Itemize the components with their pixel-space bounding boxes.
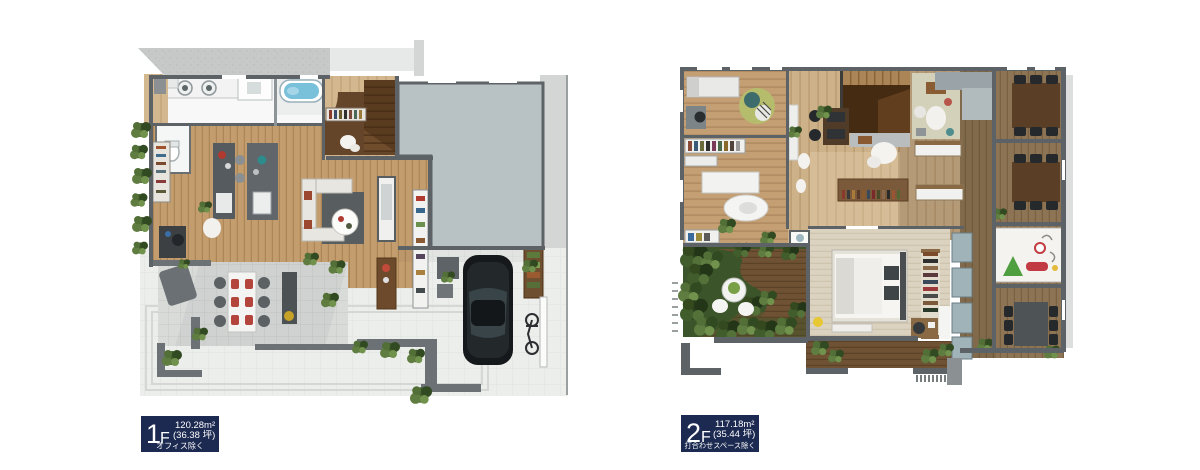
svg-text:オフィス除く: オフィス除く: [156, 441, 204, 451]
svg-text:打合わせスペース除く: 打合わせスペース除く: [684, 441, 755, 450]
svg-text:(36.38 坪): (36.38 坪): [173, 429, 215, 441]
svg-text:(35.44 坪): (35.44 坪): [713, 428, 755, 440]
